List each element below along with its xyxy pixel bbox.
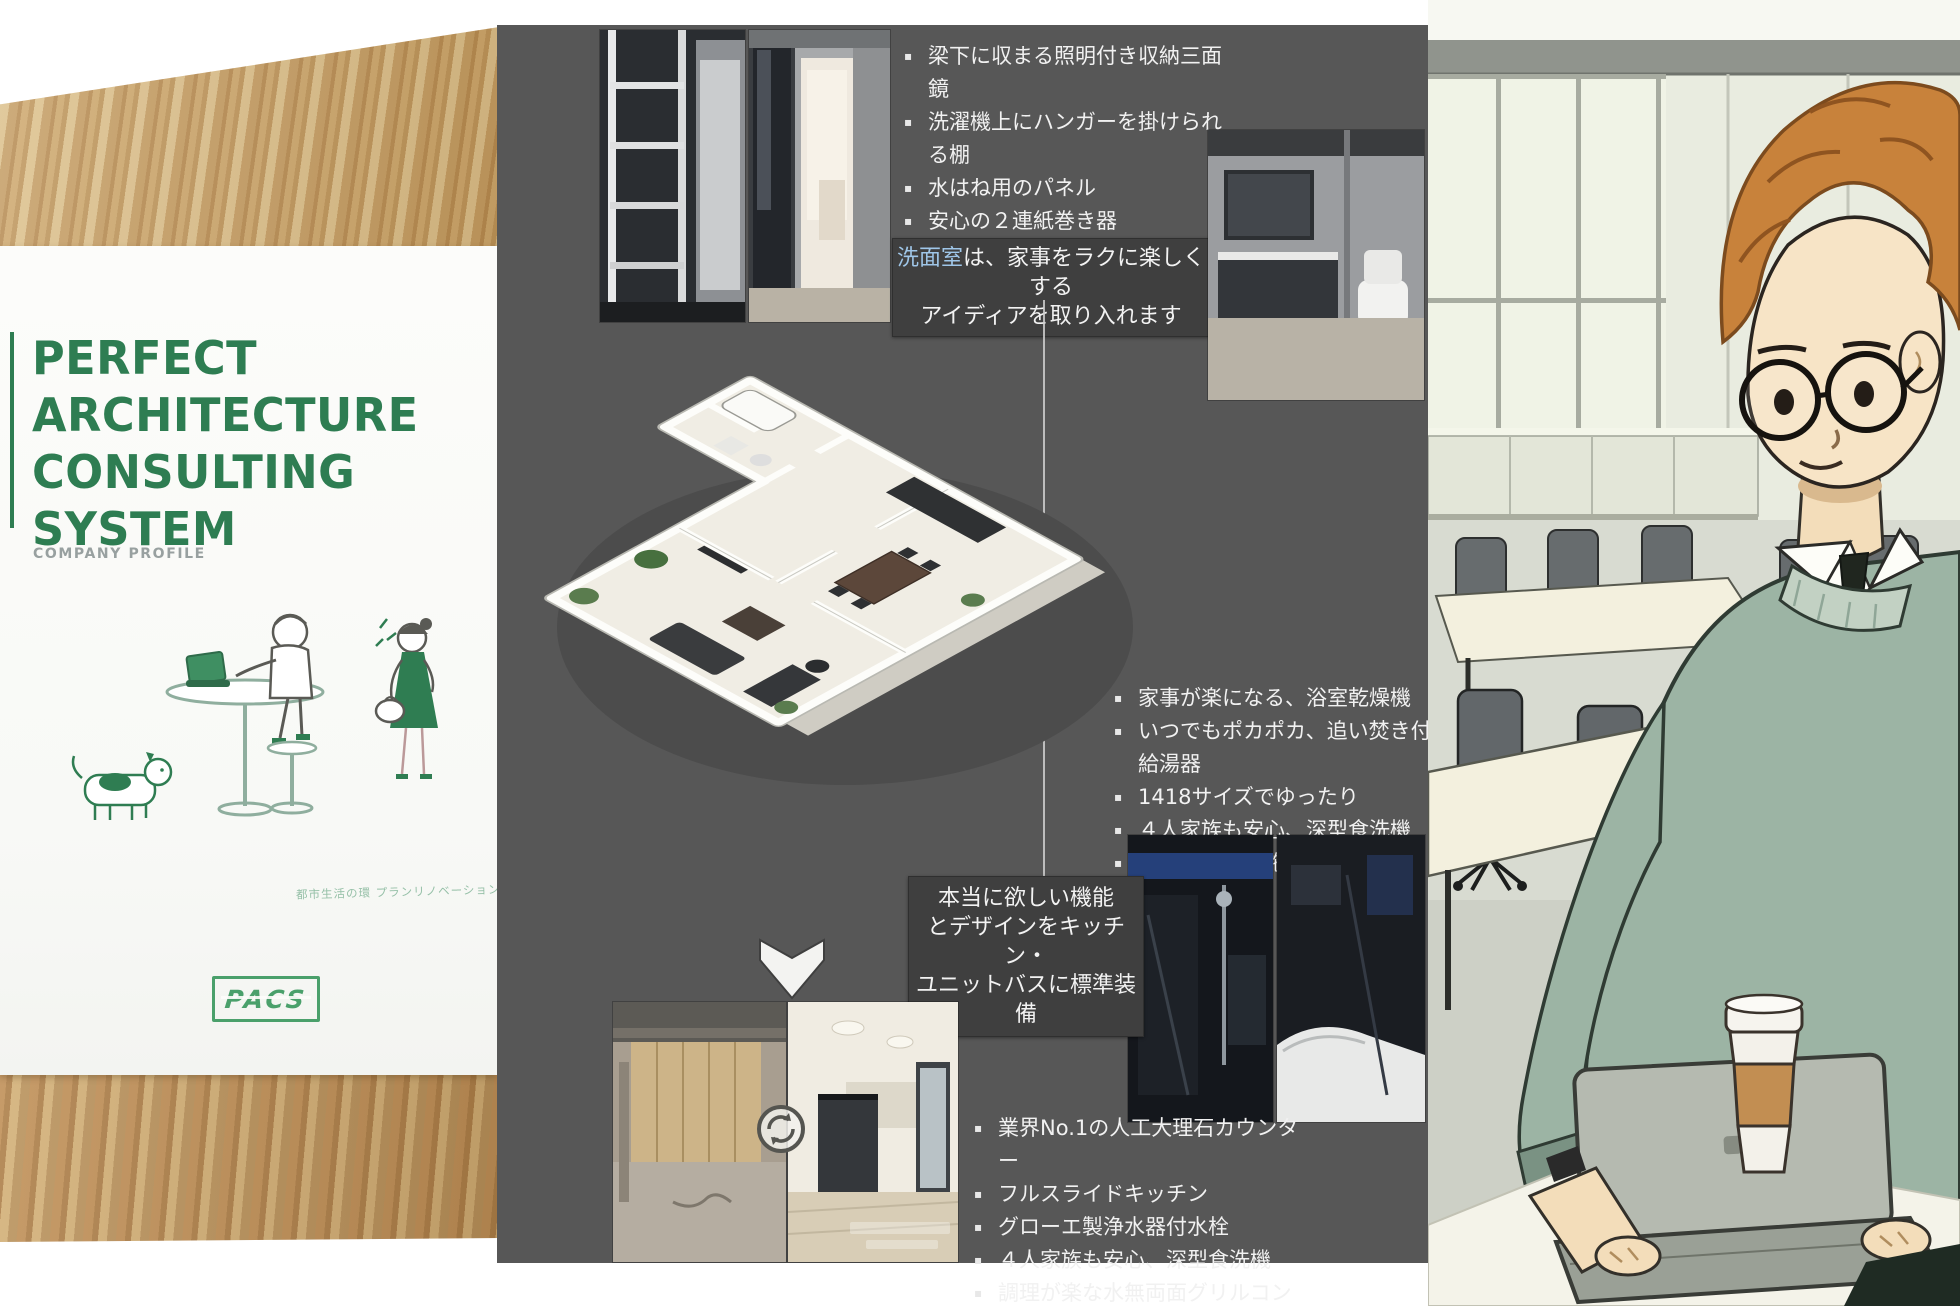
photo-bathroom-tub <box>1277 835 1425 1122</box>
title-line-1: PERFECT <box>32 330 449 387</box>
callout-washroom-highlight: 洗面室 <box>897 246 963 271</box>
pacs-logo: PACS <box>212 976 320 1022</box>
wood-table-bottom <box>0 1050 500 1250</box>
list-item: 安心の２連紙巻き器 <box>902 205 1222 238</box>
photo-laundry-hallway <box>749 30 890 322</box>
list-item: フルスライドキッチン <box>972 1178 1302 1211</box>
feature-list-kitchen: 業界No.1の人工大理石カウンター フルスライドキッチン グローエ製浄水器付水栓… <box>972 1112 1302 1306</box>
title-line-2: ARCHITECTURE <box>32 387 449 444</box>
list-item: 洗濯機上にハンガーを掛けられる棚 <box>902 106 1222 172</box>
photo-after-renovation <box>788 1002 958 1262</box>
brochure-subtitle: COMPANY PROFILE <box>33 546 206 562</box>
wood-table-top <box>0 20 500 248</box>
list-item: いつでもポカポカ、追い焚き付給湯器 <box>1112 715 1442 781</box>
callout-washroom-line1: 洗面室は、家事をラクに楽しくする <box>895 244 1207 302</box>
down-arrow-icon <box>748 938 834 1002</box>
woman-illustration <box>376 618 438 779</box>
office-cabinet <box>1428 428 1758 522</box>
photo-vanity-bathroom <box>1208 130 1424 400</box>
composite-image: PERFECT ARCHITECTURE CONSULTING SYSTEM C… <box>0 0 1960 1306</box>
title-accent-bar <box>10 332 14 528</box>
dog-illustration <box>73 752 171 820</box>
office-illustration <box>1428 0 1960 1306</box>
brochure-title: PERFECT ARCHITECTURE CONSULTING SYSTEM <box>32 330 449 558</box>
callout-kitchen-line1: 本当に欲しい機能 <box>911 884 1141 913</box>
cover-illustration <box>40 580 460 880</box>
photo-bathroom-shower <box>1128 835 1273 1122</box>
list-item: ４人家族も安心、深型食洗機 <box>972 1244 1302 1277</box>
callout-kitchen-line2: とデザインをキッチン・ <box>911 913 1141 971</box>
renovation-cycle-icon <box>755 1103 807 1155</box>
floorplan-rendering <box>540 312 1150 887</box>
photo-closet-shelves <box>600 30 745 322</box>
list-item: 家事が楽になる、浴室乾燥機 <box>1112 682 1442 715</box>
list-item: 梁下に収まる照明付き収納三面鏡 <box>902 40 1222 106</box>
list-item: グローエ製浄水器付水栓 <box>972 1211 1302 1244</box>
list-item: 調理が楽な水無両面グリルコンロ他 <box>972 1277 1302 1306</box>
pacs-logo-text: PACS <box>223 985 308 1014</box>
man-at-desk-illustration <box>236 615 316 813</box>
photo-watermark <box>866 1240 938 1249</box>
laptop-illustration <box>186 652 230 687</box>
title-line-3: CONSULTING <box>32 444 449 501</box>
left-section: PERFECT ARCHITECTURE CONSULTING SYSTEM C… <box>0 0 497 1306</box>
list-item: 1418サイズでゆったり <box>1112 781 1442 814</box>
photo-watermark <box>850 1222 950 1234</box>
list-item: 水はね用のパネル <box>902 172 1222 205</box>
list-item: 業界No.1の人工大理石カウンター <box>972 1112 1302 1178</box>
